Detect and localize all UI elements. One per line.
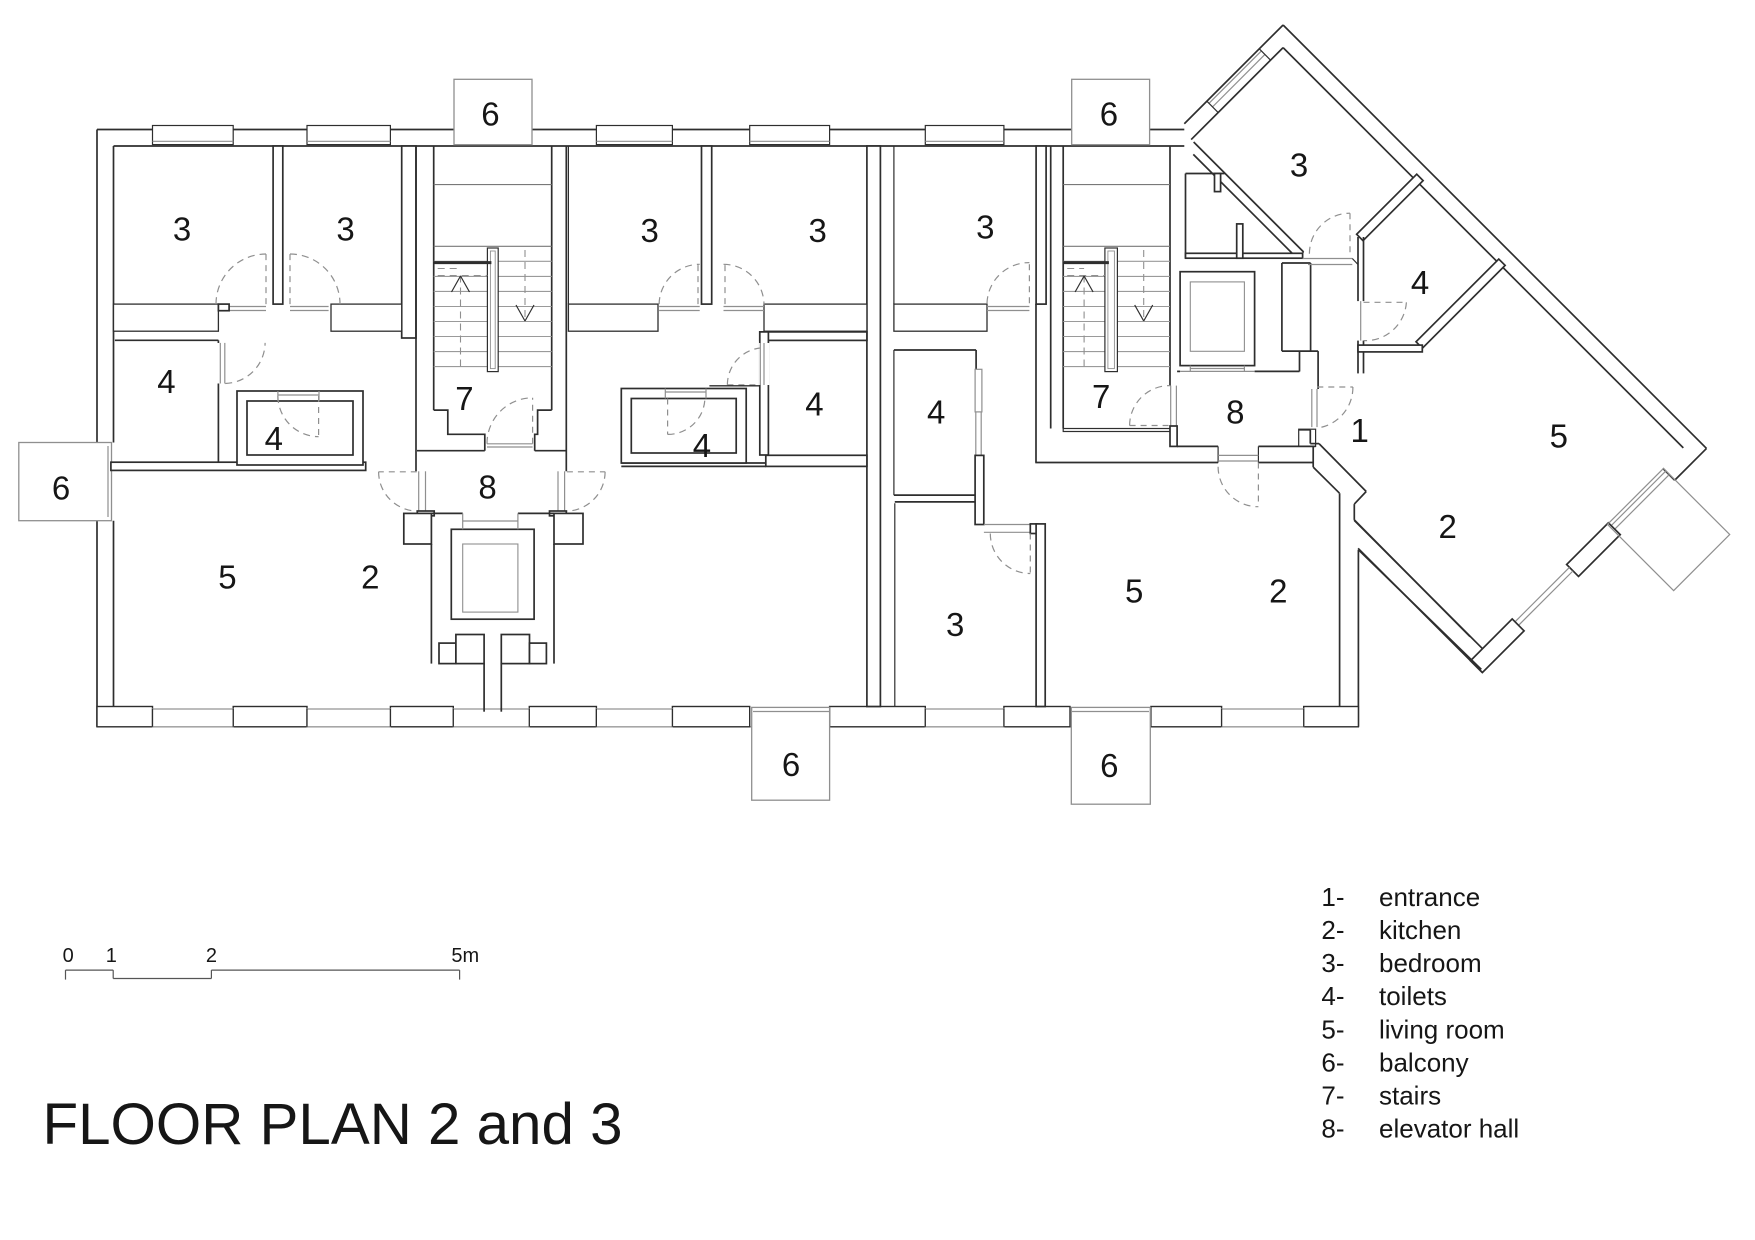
svg-text:4: 4: [265, 420, 283, 457]
svg-text:3: 3: [946, 606, 964, 643]
svg-text:6: 6: [782, 746, 800, 783]
svg-text:4: 4: [157, 363, 175, 400]
svg-text:6: 6: [481, 96, 499, 133]
svg-text:kitchen: kitchen: [1379, 915, 1461, 945]
svg-text:1: 1: [1351, 412, 1369, 449]
svg-text:5: 5: [1550, 418, 1568, 455]
svg-text:bedroom: bedroom: [1379, 948, 1482, 978]
svg-text:6: 6: [1100, 747, 1118, 784]
svg-text:2: 2: [206, 945, 217, 967]
svg-text:7: 7: [1092, 378, 1110, 415]
svg-text:entrance: entrance: [1379, 882, 1480, 912]
svg-text:5: 5: [218, 558, 236, 595]
svg-text:3: 3: [1290, 147, 1308, 184]
svg-text:5m: 5m: [451, 945, 479, 967]
svg-text:living room: living room: [1379, 1014, 1505, 1044]
svg-text:4: 4: [693, 427, 711, 464]
svg-text:2: 2: [361, 558, 379, 595]
svg-text:0: 0: [63, 945, 74, 967]
svg-text:3: 3: [336, 210, 354, 247]
svg-text:toilets: toilets: [1379, 981, 1447, 1011]
svg-text:2: 2: [1269, 572, 1287, 609]
svg-text:2: 2: [1439, 508, 1457, 545]
svg-text:5-: 5-: [1321, 1014, 1344, 1044]
svg-text:6: 6: [1100, 96, 1118, 133]
svg-text:7-: 7-: [1321, 1081, 1344, 1111]
svg-text:8: 8: [478, 468, 496, 505]
svg-text:4: 4: [1411, 264, 1429, 301]
svg-text:FLOOR PLAN 2 and 3: FLOOR PLAN 2 and 3: [43, 1092, 623, 1157]
svg-text:3: 3: [809, 212, 827, 249]
svg-text:8-: 8-: [1321, 1114, 1344, 1144]
svg-text:3-: 3-: [1321, 948, 1344, 978]
svg-text:8: 8: [1226, 393, 1244, 430]
svg-text:6-: 6-: [1321, 1047, 1344, 1077]
svg-text:6: 6: [52, 470, 70, 507]
svg-text:elevator hall: elevator hall: [1379, 1114, 1519, 1144]
svg-text:4-: 4-: [1321, 981, 1344, 1011]
svg-text:balcony: balcony: [1379, 1047, 1469, 1077]
svg-text:7: 7: [455, 380, 473, 417]
svg-text:5: 5: [1125, 572, 1143, 609]
svg-text:3: 3: [641, 212, 659, 249]
svg-text:1-: 1-: [1321, 882, 1344, 912]
svg-text:1: 1: [106, 945, 117, 967]
svg-text:3: 3: [173, 210, 191, 247]
svg-text:3: 3: [976, 209, 994, 246]
svg-text:2-: 2-: [1321, 915, 1344, 945]
svg-text:4: 4: [805, 385, 823, 422]
svg-text:stairs: stairs: [1379, 1081, 1441, 1111]
svg-text:4: 4: [927, 393, 945, 430]
